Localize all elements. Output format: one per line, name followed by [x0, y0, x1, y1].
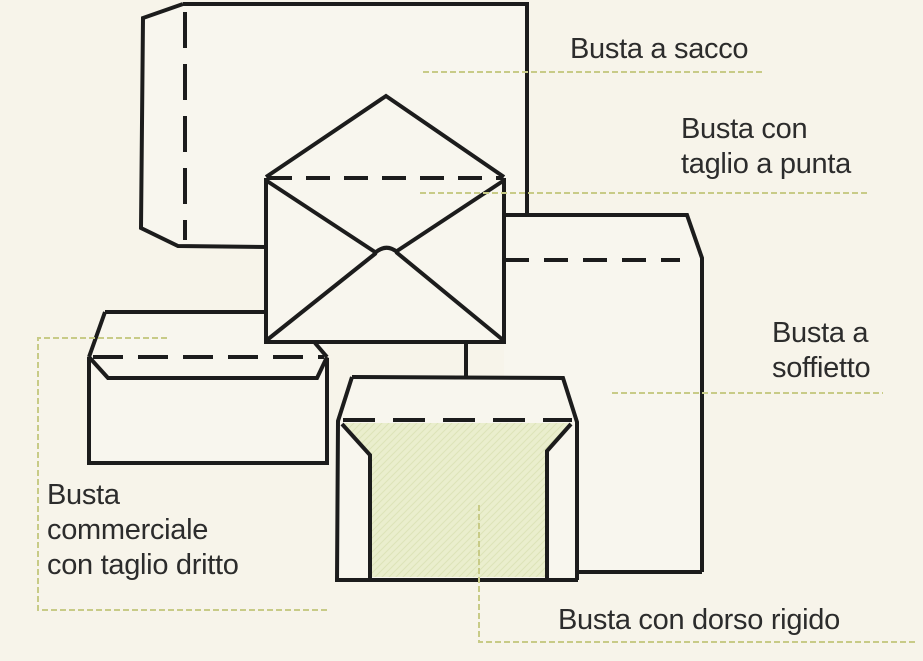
label-line: Busta [47, 478, 239, 513]
label-busta-con-dorso-rigido: Busta con dorso rigido [558, 603, 840, 638]
commercial-envelope-fill [89, 312, 327, 463]
label-busta-con-taglio-a-punta: Busta con taglio a punta [681, 112, 851, 182]
label-busta-a-soffietto: Busta a soffietto [772, 316, 870, 386]
label-line: taglio a punta [681, 147, 851, 182]
label-line: Busta con [681, 112, 851, 147]
label-line: con taglio dritto [47, 548, 239, 583]
envelope-types-figure: Busta a sacco Busta con taglio a punta B… [0, 0, 923, 661]
label-line: soffietto [772, 351, 870, 386]
label-busta-a-sacco: Busta a sacco [570, 32, 748, 67]
label-line: Busta a sacco [570, 32, 748, 67]
label-line: Busta a [772, 316, 870, 351]
rigid-back-envelope-interior [344, 423, 571, 577]
label-line: commerciale [47, 513, 239, 548]
label-line: Busta con dorso rigido [558, 603, 840, 638]
label-busta-commerciale: Busta commerciale con taglio dritto [47, 478, 239, 583]
